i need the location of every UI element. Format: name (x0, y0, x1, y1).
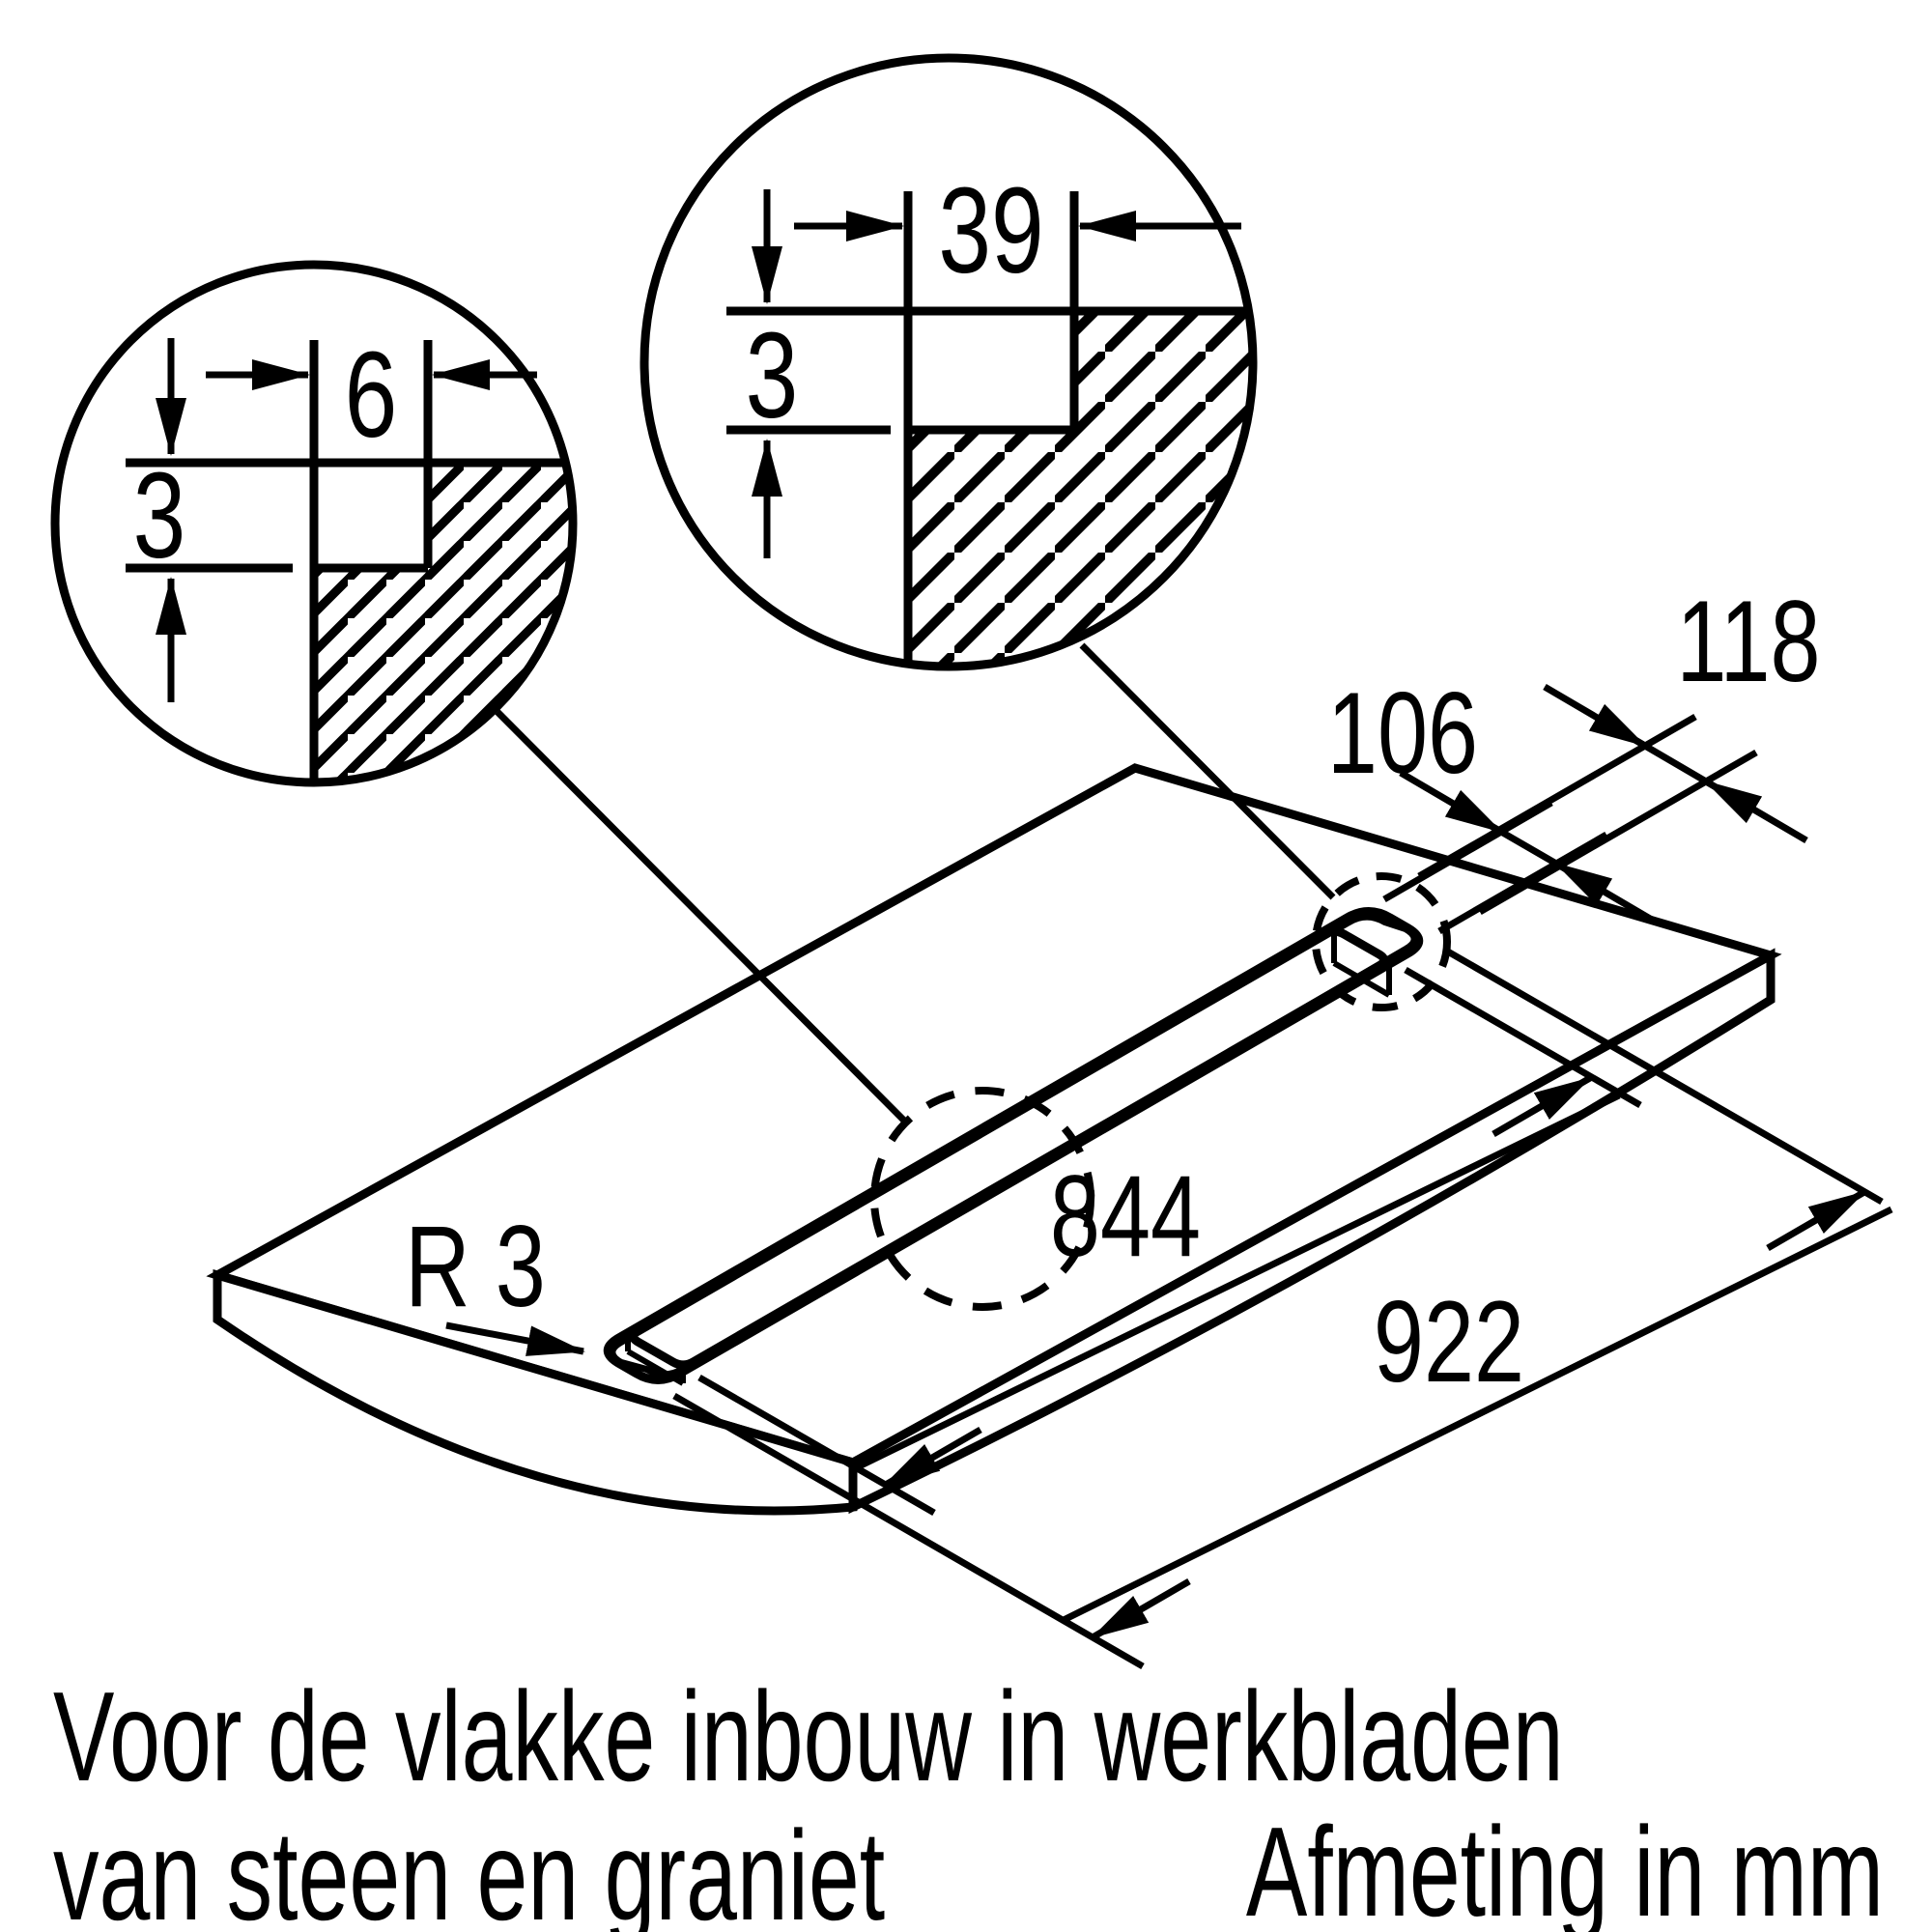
dim-106-label: 106 (1327, 668, 1478, 798)
dimension-recess-width: 118 (1419, 577, 1821, 912)
dim-922-label: 922 (1374, 1277, 1524, 1406)
detail-left-width-label: 6 (345, 327, 398, 463)
detail-view-side-profile: 6 3 (55, 265, 580, 787)
detail-left-depth-label: 3 (133, 447, 186, 583)
detail-center-depth-label: 3 (746, 307, 799, 443)
dim-r3-label: R 3 (405, 1202, 546, 1331)
footer-units-note: Afmeting in mm (1246, 1802, 1884, 1932)
installation-diagram: 106 118 844 922 (0, 0, 1932, 1932)
dim-118-label: 118 (1676, 577, 1820, 706)
diagram-page: 106 118 844 922 (0, 0, 1932, 1932)
detail-view-end-profile: 39 3 (644, 58, 1253, 671)
caption-line-2: van steen en graniet (53, 1805, 885, 1932)
caption-line-1: Voor de vlakke inbouw in werkbladen (53, 1666, 1564, 1808)
dim-844-label: 844 (1050, 1151, 1201, 1281)
detail-center-width-label: 39 (938, 162, 1043, 298)
